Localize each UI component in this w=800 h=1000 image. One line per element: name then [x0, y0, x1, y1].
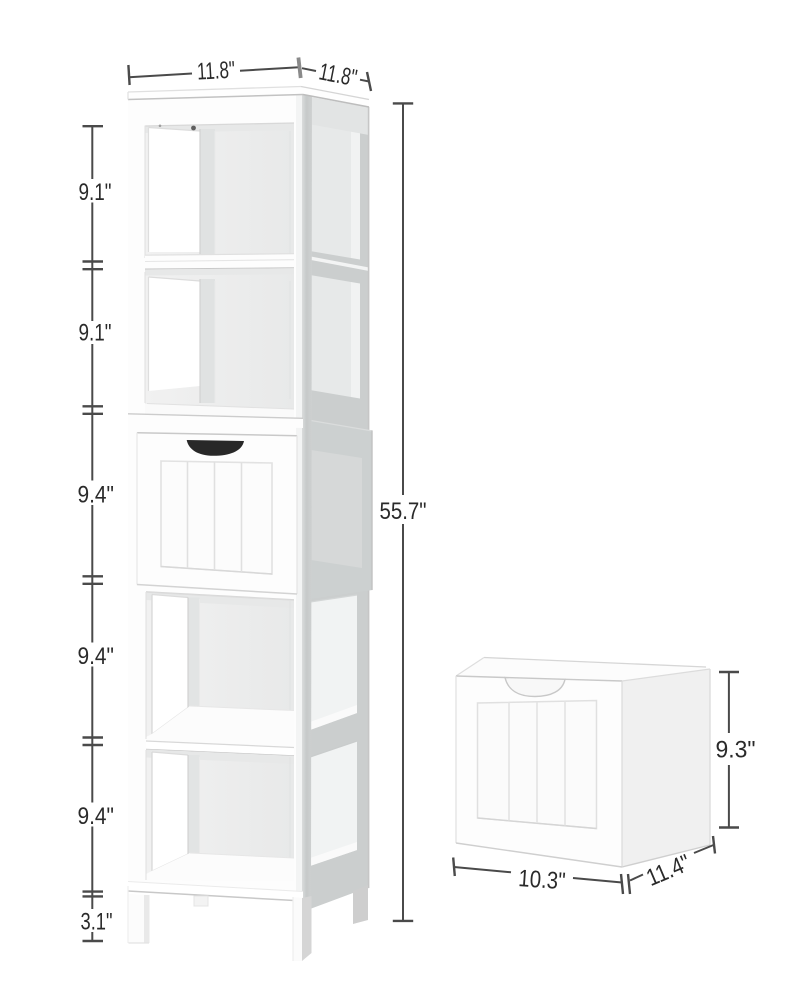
svg-text:3.1": 3.1" [81, 909, 113, 936]
svg-text:9.1": 9.1" [79, 320, 112, 347]
svg-text:9.1": 9.1" [79, 179, 112, 206]
svg-text:10.3": 10.3" [517, 865, 566, 895]
svg-text:9.4": 9.4" [77, 643, 114, 670]
svg-text:55.7": 55.7" [380, 498, 427, 525]
svg-text:9.4": 9.4" [77, 803, 114, 830]
svg-text:11.8": 11.8" [196, 57, 235, 86]
svg-text:9.4": 9.4" [77, 482, 114, 509]
svg-text:9.3": 9.3" [716, 737, 756, 764]
